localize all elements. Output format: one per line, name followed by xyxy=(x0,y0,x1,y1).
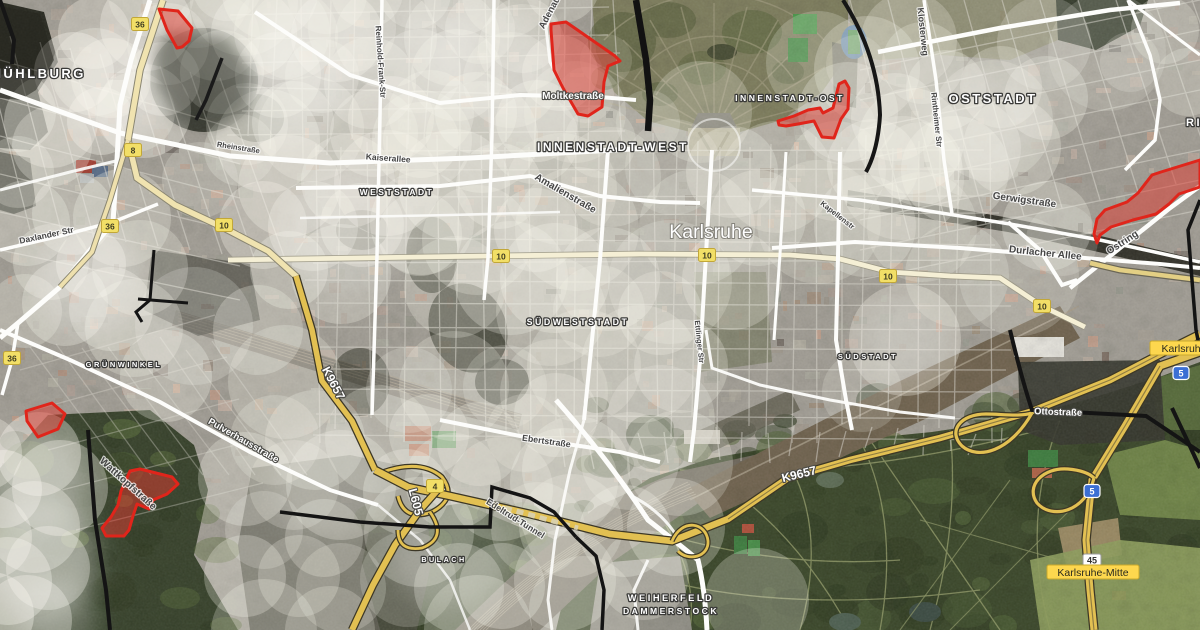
svg-text:WESTSTADT: WESTSTADT xyxy=(360,187,435,197)
svg-text:10: 10 xyxy=(1037,302,1047,312)
svg-text:36: 36 xyxy=(135,20,145,30)
svg-text:36: 36 xyxy=(7,354,17,364)
svg-text:10: 10 xyxy=(219,221,229,231)
svg-text:BULACH: BULACH xyxy=(421,555,466,564)
svg-text:8: 8 xyxy=(131,146,136,156)
svg-text:SÜDWESTSTADT: SÜDWESTSTADT xyxy=(527,317,630,327)
svg-text:RINTHEIM: RINTHEIM xyxy=(1186,117,1200,129)
svg-text:5: 5 xyxy=(1089,487,1094,497)
svg-text:WEIHERFELD: WEIHERFELD xyxy=(628,593,714,603)
svg-text:OSTSTADT: OSTSTADT xyxy=(948,91,1037,106)
svg-text:10: 10 xyxy=(883,272,893,282)
svg-text:Karlsruhe: Karlsruhe xyxy=(669,221,752,243)
svg-text:GRÜNWINKEL: GRÜNWINKEL xyxy=(86,360,163,369)
svg-text:45: 45 xyxy=(1087,556,1097,566)
svg-text:Karlsruhe-Mitte: Karlsruhe-Mitte xyxy=(1057,567,1128,579)
svg-text:Karlsruhe: Karlsruhe xyxy=(1162,343,1200,355)
svg-text:4: 4 xyxy=(433,482,438,492)
svg-text:INNENSTADT-WEST: INNENSTADT-WEST xyxy=(537,140,689,154)
svg-text:Ottostraße: Ottostraße xyxy=(1034,406,1082,419)
svg-text:36: 36 xyxy=(105,222,115,232)
svg-text:SÜDSTADT: SÜDSTADT xyxy=(838,352,898,361)
svg-text:5: 5 xyxy=(1178,369,1183,379)
svg-text:10: 10 xyxy=(496,252,506,262)
svg-text:10: 10 xyxy=(702,251,712,261)
svg-text:Moltkestraße: Moltkestraße xyxy=(542,91,604,102)
svg-text:MÜHLBURG: MÜHLBURG xyxy=(0,66,86,81)
svg-text:INNENSTADT-OST: INNENSTADT-OST xyxy=(735,93,845,103)
svg-text:DAMMERSTOCK: DAMMERSTOCK xyxy=(623,606,719,616)
